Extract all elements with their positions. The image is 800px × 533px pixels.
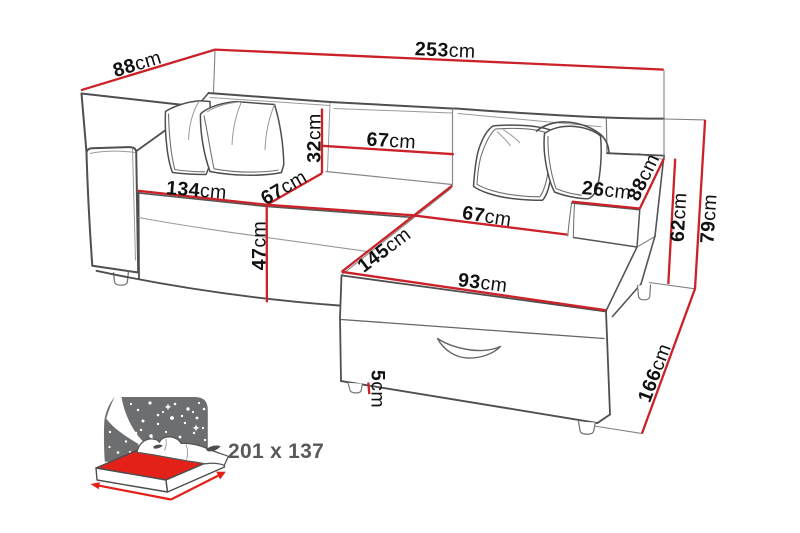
svg-text:67cm: 67cm [366,129,417,154]
svg-text:62cm: 62cm [667,192,692,243]
svg-text:253cm: 253cm [414,38,476,63]
svg-text:79cm: 79cm [696,193,721,244]
svg-text:32cm: 32cm [304,113,326,163]
svg-text:5cm: 5cm [367,370,389,408]
svg-text:47cm: 47cm [249,221,271,271]
svg-text:201 x 137: 201 x 137 [228,440,324,463]
